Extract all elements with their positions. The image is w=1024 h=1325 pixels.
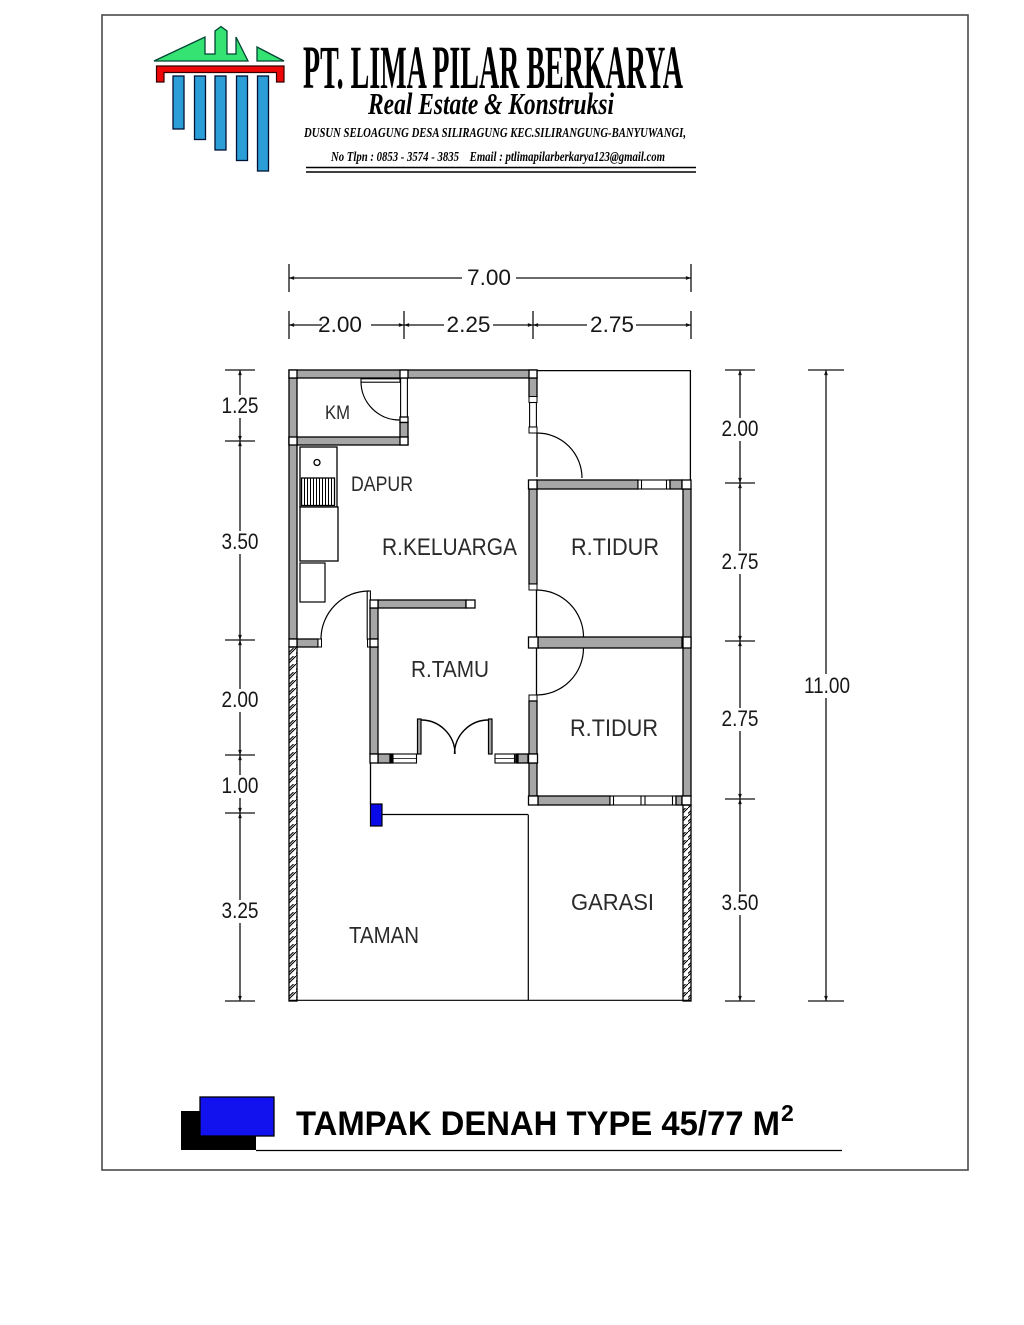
svg-text:R.KELUARGA: R.KELUARGA	[382, 534, 517, 561]
svg-text:2.00: 2.00	[318, 312, 362, 337]
svg-text:1.00: 1.00	[222, 773, 259, 798]
svg-text:1.25: 1.25	[222, 393, 259, 418]
svg-text:3.25: 3.25	[222, 898, 259, 923]
svg-text:TAMAN: TAMAN	[349, 922, 419, 948]
svg-text:No Tlpn : 0853 - 3574 - 3835: No Tlpn : 0853 - 3574 - 3835 Email : ptl…	[330, 149, 665, 164]
svg-text:7.00: 7.00	[467, 265, 511, 290]
svg-text:3.50: 3.50	[722, 890, 759, 915]
svg-text:2.75: 2.75	[722, 706, 759, 731]
svg-text:R.TAMU: R.TAMU	[411, 656, 489, 682]
svg-text:DUSUN SELOAGUNG DESA SILIRAGUN: DUSUN SELOAGUNG DESA SILIRAGUNG KEC.SILI…	[303, 126, 686, 141]
svg-text:11.00: 11.00	[804, 673, 850, 698]
svg-text:Real Estate & Konstruksi: Real Estate & Konstruksi	[367, 86, 614, 121]
svg-text:3.50: 3.50	[222, 529, 259, 554]
svg-text:GARASI: GARASI	[571, 889, 654, 915]
svg-text:R.TIDUR: R.TIDUR	[570, 715, 658, 742]
svg-text:DAPUR: DAPUR	[351, 472, 413, 496]
svg-text:2.75: 2.75	[590, 312, 634, 337]
svg-text:TAMPAK DENAH TYPE 45/77 M: TAMPAK DENAH TYPE 45/77 M	[296, 1105, 780, 1143]
svg-text:KM: KM	[325, 402, 350, 424]
svg-text:R.TIDUR: R.TIDUR	[571, 534, 659, 561]
svg-text:2.75: 2.75	[722, 549, 759, 574]
svg-text:2.00: 2.00	[222, 687, 259, 712]
svg-text:2: 2	[781, 1100, 794, 1126]
svg-text:2.25: 2.25	[447, 312, 491, 337]
svg-text:2.00: 2.00	[722, 416, 759, 441]
